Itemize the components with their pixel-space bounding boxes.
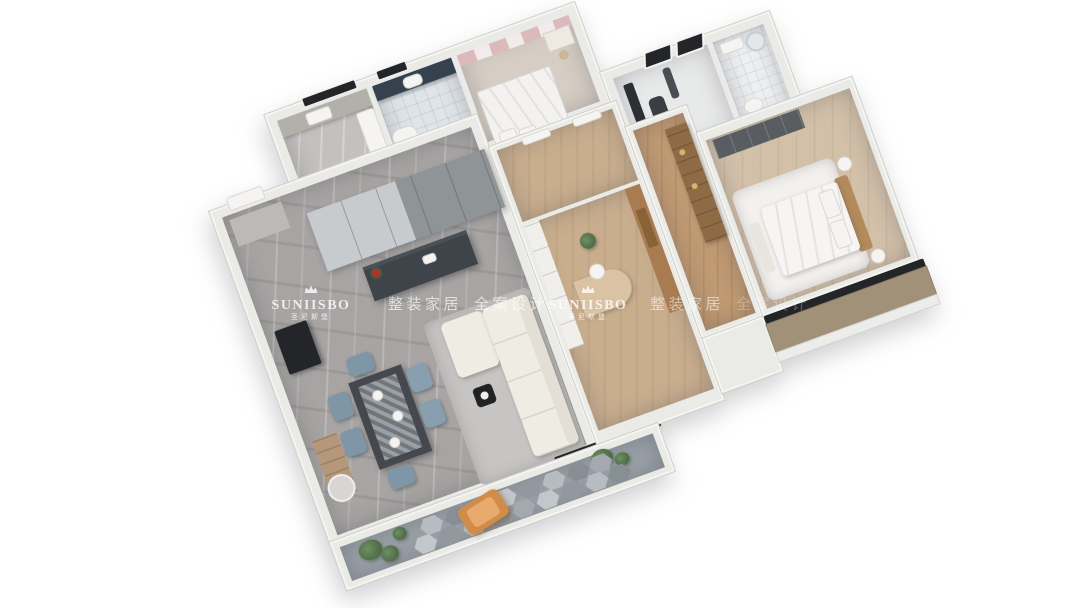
screenshot-canvas: SUNIISBO 圣尼斯堡 整装家居全案设计 SUNIISBO 圣尼斯堡 整装家…	[0, 0, 1080, 608]
watermark-tagline-part2: 全案设计	[736, 295, 810, 313]
watermark-tagline-part1: 整装家居	[388, 295, 462, 313]
watermark-brand-cn: 圣尼斯堡	[543, 313, 633, 321]
watermark-brand: SUNIISBO	[266, 299, 356, 313]
crown-icon	[304, 285, 318, 294]
crown-icon	[581, 285, 595, 294]
watermark-logo: SUNIISBO 圣尼斯堡	[543, 281, 633, 321]
watermark-tagline-part2: 全案设计	[474, 295, 548, 313]
watermark-tagline: 整装家居全案设计	[650, 293, 810, 314]
watermark-brand: SUNIISBO	[543, 299, 633, 313]
watermark-tagline: 整装家居全案设计	[388, 293, 548, 314]
watermark-brand-cn: 圣尼斯堡	[266, 313, 356, 321]
watermark-tagline-part1: 整装家居	[650, 295, 724, 313]
watermark-logo: SUNIISBO 圣尼斯堡	[266, 281, 356, 321]
